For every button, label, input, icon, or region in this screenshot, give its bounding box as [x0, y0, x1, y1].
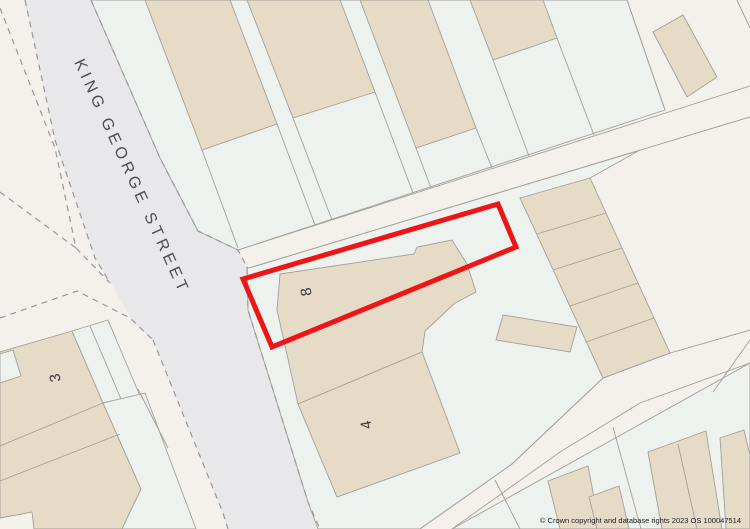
map-viewport[interactable]: KING GEORGE STREET843© Crown copyright a… — [0, 0, 750, 529]
copyright-notice: © Crown copyright and database rights 20… — [540, 516, 741, 525]
map-canvas[interactable]: KING GEORGE STREET843© Crown copyright a… — [0, 0, 750, 529]
